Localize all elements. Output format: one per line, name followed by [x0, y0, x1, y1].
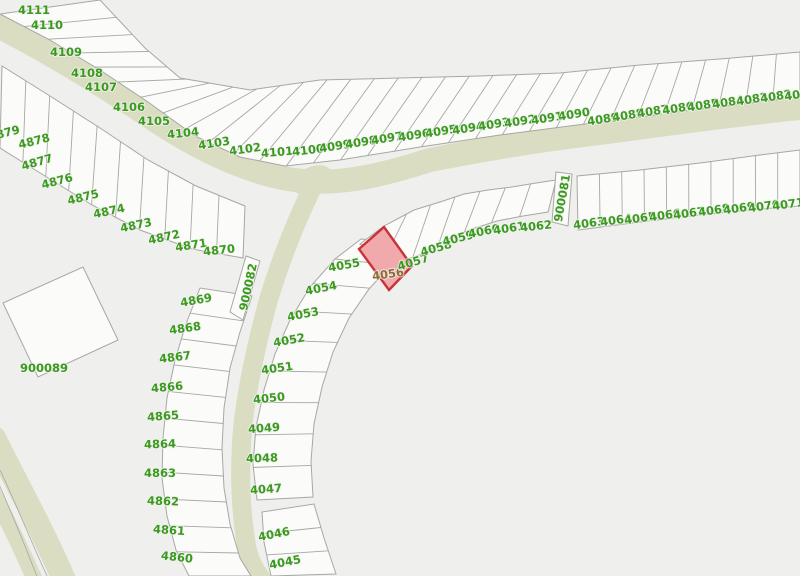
parcel-label-4101: 4101 — [260, 144, 293, 161]
parcel-label-4110: 4110 — [31, 18, 63, 32]
parcel-label-4047: 4047 — [250, 481, 283, 497]
parcel-label-4108: 4108 — [71, 66, 103, 80]
parcel-label-4861: 4861 — [153, 522, 186, 538]
parcel-label-4864: 4864 — [144, 436, 176, 451]
parcel-label-4105: 4105 — [138, 114, 170, 128]
parcel-label-4111: 4111 — [18, 3, 50, 17]
parcel-label-4048: 4048 — [246, 450, 278, 465]
parcel-label-4863: 4863 — [144, 466, 176, 480]
map-viewport[interactable]: 4111411041094108410741064105410441034102… — [0, 0, 800, 576]
parcel-label-4862: 4862 — [147, 493, 179, 508]
parcel-label-4106: 4106 — [113, 100, 145, 114]
parcel-label-4049: 4049 — [248, 420, 281, 436]
parcel-label-4865: 4865 — [147, 408, 180, 424]
parcel-label-4109: 4109 — [50, 45, 82, 59]
parcel-map-canvas[interactable]: 4111411041094108410741064105410441034102… — [0, 0, 800, 576]
parcel-label-4107: 4107 — [85, 80, 117, 94]
parcel-label-4866: 4866 — [150, 379, 183, 396]
parcel-label-900089: 900089 — [20, 361, 68, 375]
